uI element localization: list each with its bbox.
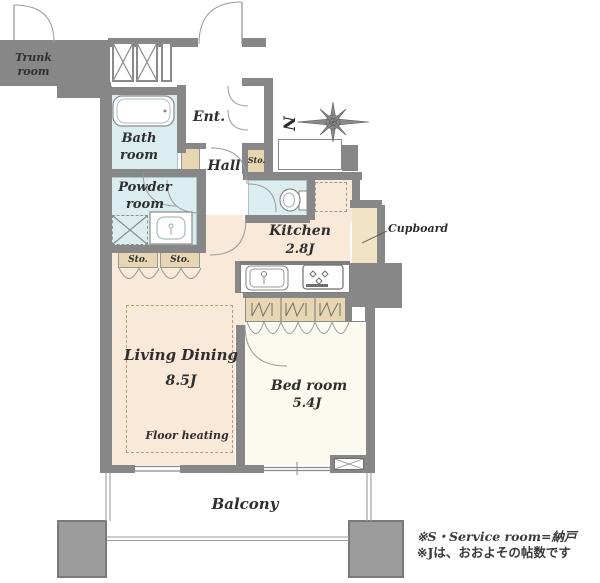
trunk-room-label: Trunk room (9, 51, 58, 80)
footnote-service-room: ※S・Service room=納戸 (417, 529, 597, 545)
hall-storage-label: Sto. (247, 155, 266, 165)
cupboard-label: Cupboard (388, 222, 448, 236)
toilet-fixture (280, 189, 307, 211)
door-leaves (14, 2, 242, 44)
bifold-doors-storage (119, 268, 201, 279)
floor-heating-label: Floor heating (132, 429, 242, 443)
compass-letter: N (278, 113, 299, 133)
closet-hanger-symbols (252, 303, 340, 316)
stove (303, 265, 343, 289)
kitchen-sink (246, 266, 288, 290)
bedroom-label: Bed room (262, 377, 356, 395)
entrance-label: Ent. (188, 108, 230, 126)
ld-storage-label-2: Sto. (160, 255, 200, 267)
plan-linework (0, 0, 600, 583)
footnote-jo: ※Jは、おおよその帖数です (417, 545, 597, 561)
ld-storage-label-1: Sto. (118, 255, 158, 267)
living-dining-size-label: 8.5J (146, 372, 216, 390)
living-dining-label: Living Dining (122, 346, 240, 366)
vanity-sink (150, 212, 192, 244)
balcony-label: Balcony (203, 495, 287, 515)
kitchen-size-label: 2.8J (268, 242, 332, 259)
powder-room-label: Powder room (114, 180, 176, 214)
hall-label: Hall (200, 157, 248, 175)
cupboard-leader-line (362, 231, 387, 243)
floor-plan: Trunk room Bath room Powder room Ent. Ha… (0, 0, 600, 583)
kitchen-label: Kitchen (258, 222, 342, 240)
bedroom-size-label: 5.4J (272, 396, 342, 413)
bath-room-label: Bath room (110, 131, 168, 165)
bathtub (113, 96, 174, 126)
compass-icon (297, 102, 369, 142)
windows (133, 462, 330, 475)
